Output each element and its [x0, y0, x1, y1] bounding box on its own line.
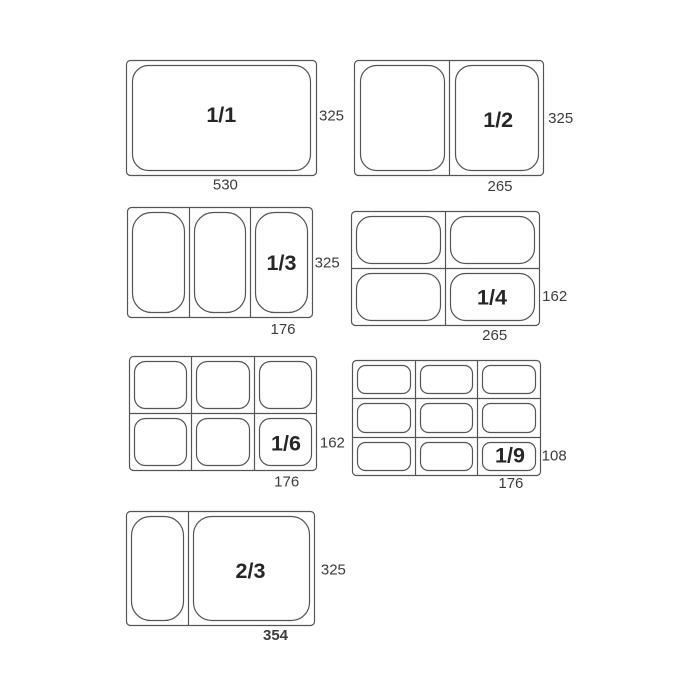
- svg-text:176: 176: [498, 475, 523, 492]
- svg-text:265: 265: [487, 178, 512, 195]
- svg-text:2/3: 2/3: [236, 559, 266, 583]
- svg-text:1/1: 1/1: [206, 103, 236, 127]
- svg-text:108: 108: [542, 447, 567, 464]
- svg-text:354: 354: [263, 627, 289, 644]
- svg-text:1/9: 1/9: [495, 444, 525, 468]
- svg-text:325: 325: [315, 254, 340, 271]
- svg-text:1/6: 1/6: [271, 432, 301, 456]
- svg-text:162: 162: [542, 288, 567, 305]
- svg-text:1/4: 1/4: [477, 286, 507, 310]
- svg-text:530: 530: [213, 177, 238, 194]
- svg-text:325: 325: [319, 107, 344, 124]
- svg-text:162: 162: [320, 435, 345, 452]
- svg-text:325: 325: [321, 562, 346, 579]
- svg-text:325: 325: [548, 110, 573, 127]
- svg-text:265: 265: [482, 327, 507, 344]
- svg-text:176: 176: [274, 474, 299, 491]
- svg-text:1/2: 1/2: [483, 108, 513, 132]
- svg-text:176: 176: [270, 321, 295, 338]
- svg-text:1/3: 1/3: [267, 251, 297, 275]
